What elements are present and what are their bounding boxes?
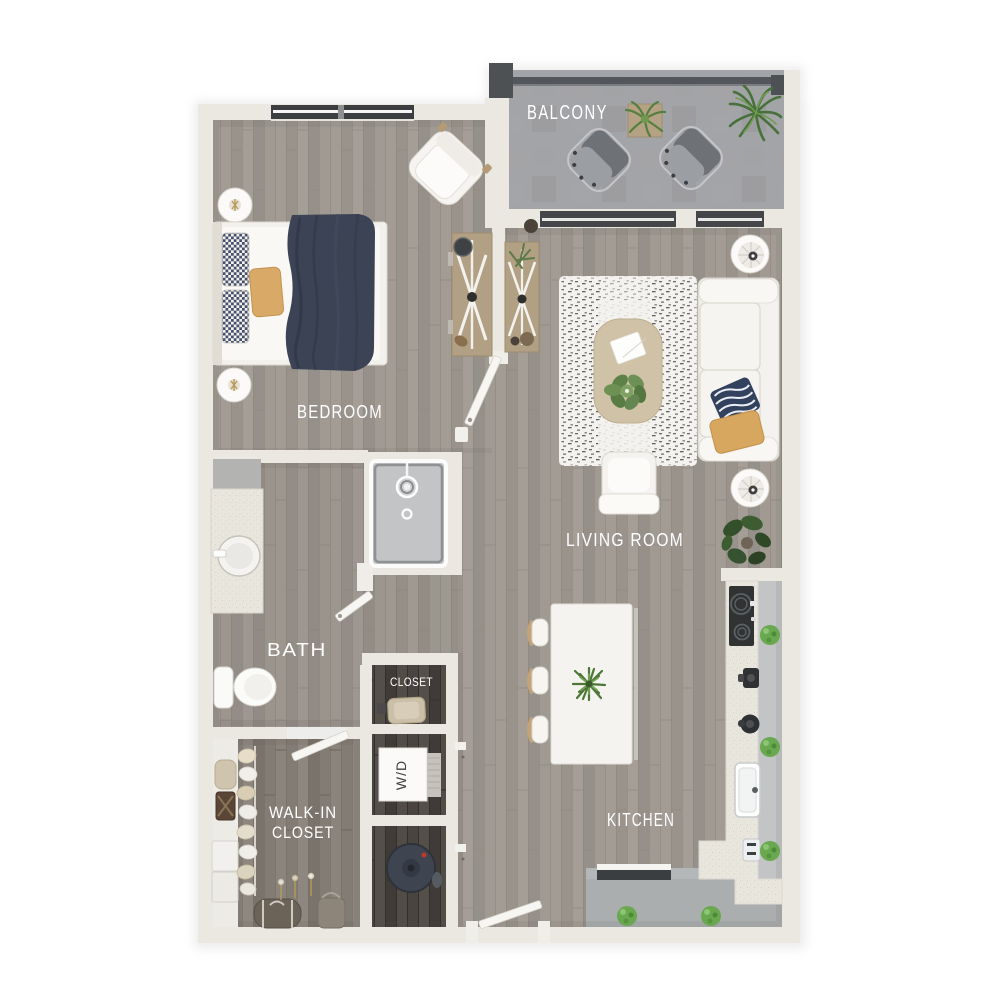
svg-text:CLOSET: CLOSET	[272, 823, 334, 842]
svg-text:KITCHEN: KITCHEN	[607, 810, 675, 830]
svg-text:LIVING ROOM: LIVING ROOM	[566, 530, 684, 550]
svg-text:BATH: BATH	[267, 640, 327, 660]
svg-text:BEDROOM: BEDROOM	[297, 402, 383, 422]
svg-text:W/D: W/D	[393, 760, 409, 790]
svg-text:BALCONY: BALCONY	[527, 102, 608, 124]
svg-text:CLOSET: CLOSET	[390, 675, 433, 689]
svg-text:WALK-IN: WALK-IN	[269, 803, 337, 822]
